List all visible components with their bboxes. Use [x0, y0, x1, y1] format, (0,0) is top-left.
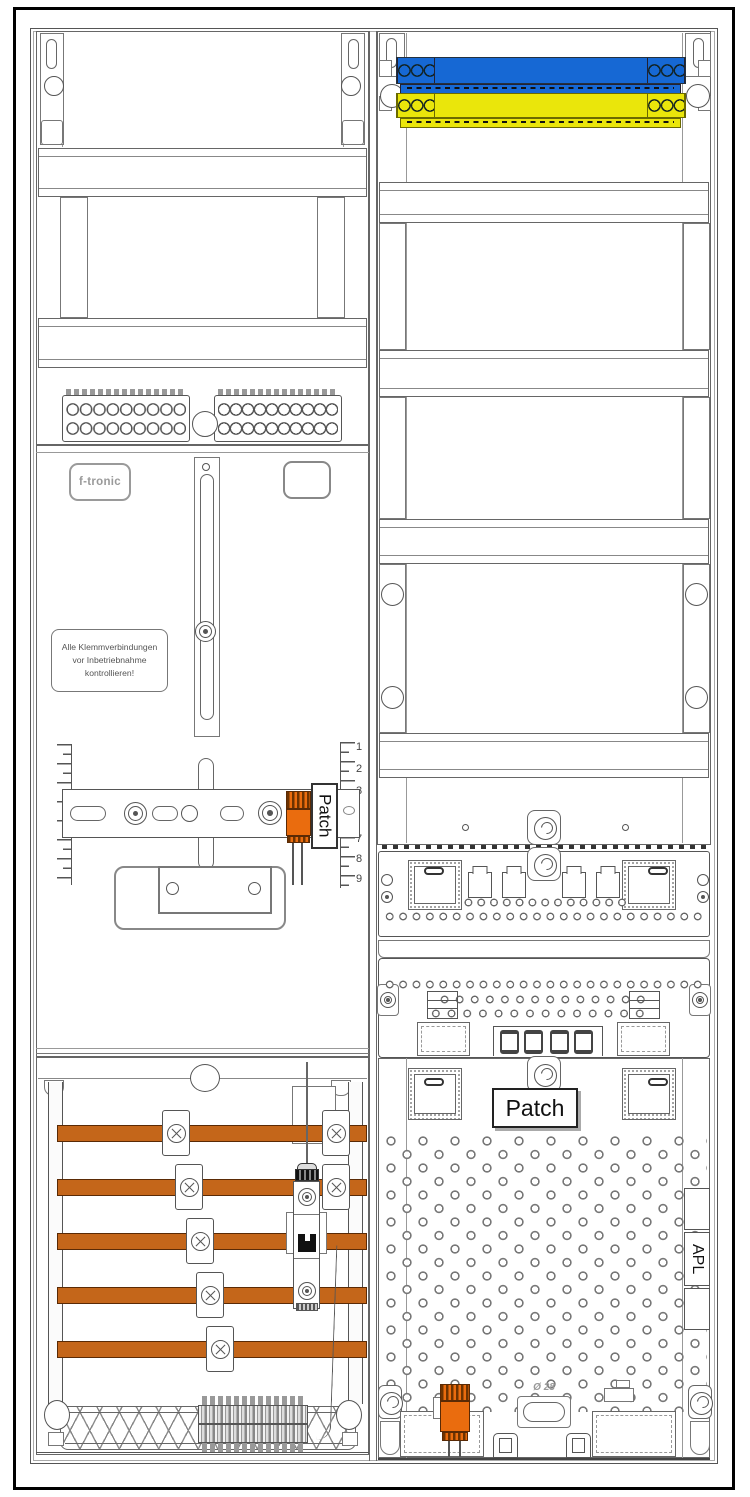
- hole-row: [437, 993, 649, 1006]
- ruler-number: 1: [356, 741, 362, 753]
- patch-label-left-text: Patch: [315, 794, 335, 837]
- panel-bump-icon: [697, 891, 709, 903]
- side-post: [379, 397, 406, 519]
- box-icon: [616, 1380, 630, 1388]
- din-rail-cover-r2: [379, 350, 709, 397]
- panel-dot-icon: [462, 824, 469, 831]
- blank-badge: [283, 461, 331, 499]
- busbar-clamp: [175, 1164, 203, 1210]
- foot-arc: [380, 1421, 400, 1455]
- screw-icon: [323, 1120, 350, 1147]
- quarter-turn-fastener-icon: [378, 1385, 402, 1419]
- cable-clamp-icon: [500, 1030, 519, 1054]
- quarter-turn-fastener-icon: [527, 810, 561, 845]
- terminal-holes: [218, 400, 338, 438]
- side-post: [379, 223, 406, 350]
- busbar-clamp: [206, 1326, 234, 1372]
- din-rail-cover-2: [38, 318, 367, 368]
- patch-module-wire: [301, 843, 303, 885]
- din-rail-cover-1: [38, 148, 367, 197]
- apl-label-box: APL: [684, 1232, 710, 1286]
- rail-foot-l: [41, 120, 63, 145]
- slide-screw-icon: [195, 621, 216, 642]
- patch-label-right: Patch: [492, 1088, 578, 1128]
- panel-bump-icon: [697, 874, 709, 886]
- din-rail-cover-r4: [379, 733, 709, 778]
- left-bottom-line: [36, 1452, 369, 1453]
- box-icon: [604, 1388, 634, 1402]
- rj45-jack-icon: [468, 872, 492, 898]
- warning-line-2: vor Inbetriebnahme: [72, 654, 146, 667]
- rail-box: [684, 1288, 710, 1330]
- slide-bar-slot: [200, 474, 214, 720]
- rail-slot-icon: [46, 39, 57, 69]
- apl-label-text: APL: [688, 1244, 706, 1274]
- pe-bar-yellow: [396, 93, 686, 118]
- patch-panel-a-skirt: [378, 940, 710, 958]
- brand-badge-label: f-tronic: [79, 476, 121, 488]
- panel-dot-icon: [622, 824, 629, 831]
- device-line: [294, 1258, 319, 1259]
- pe-bar-endblock: [647, 94, 685, 117]
- cutout-slot-icon: [648, 867, 668, 875]
- module-cutout: [408, 1068, 462, 1120]
- panel-bump-icon: [381, 874, 393, 886]
- rail-slot: [220, 806, 244, 821]
- meter-cabinet-diagram: f-tronic Alle Klemmverbindungen vor Inbe…: [0, 0, 750, 1497]
- foot-arc: [690, 1421, 710, 1455]
- nameplate-hole-icon: [166, 882, 179, 895]
- busbar-clamp: [322, 1110, 350, 1156]
- terminal-strip-tabs: [202, 1443, 304, 1452]
- patch-module-body: [286, 809, 311, 836]
- meter-panel-topline: [36, 452, 369, 453]
- device-cap-stripes: [295, 1169, 319, 1181]
- perforated-plate: [383, 1134, 707, 1412]
- module-cutout: [622, 1068, 676, 1120]
- busbar-clamp: [322, 1164, 350, 1210]
- warning-label: Alle Klemmverbindungen vor Inbetriebnahm…: [51, 629, 168, 692]
- warning-line-1: Alle Klemmverbindungen: [62, 641, 158, 654]
- corner-screw-icon: [380, 992, 396, 1008]
- rail-slot-icon: [348, 39, 359, 69]
- clamp-bracket-icon: [566, 1433, 591, 1458]
- din-rail-cover-r1: [379, 182, 709, 223]
- post-hole-icon: [685, 583, 708, 606]
- cable-clamp-icon: [550, 1030, 569, 1054]
- din-rail-cover-r3: [379, 519, 709, 564]
- cutout-slot-icon: [648, 1078, 668, 1086]
- post-hole-icon: [381, 583, 404, 606]
- meter-panel-bottomline: [36, 1048, 369, 1049]
- neutral-bar-endblock: [397, 58, 435, 83]
- cable-clamp-icon: [524, 1030, 543, 1054]
- patch-module-foot: [287, 836, 310, 843]
- corner-screw-icon: [692, 992, 708, 1008]
- rail-hole-icon: [44, 76, 64, 96]
- rail-screw-icon: [258, 801, 282, 825]
- column-divider: [369, 31, 377, 1461]
- cutout-open: [417, 1022, 470, 1056]
- screw-icon: [187, 1228, 214, 1255]
- top-rail-notch-icon: [190, 1064, 220, 1092]
- bar-clip: [698, 60, 711, 77]
- busbar-clamp: [186, 1218, 214, 1264]
- surge-module-foot: [442, 1432, 468, 1441]
- corner-grommet-icon: [44, 1400, 70, 1430]
- right-top-section: [377, 31, 711, 845]
- cable-clamp-icon: [574, 1030, 593, 1054]
- neutral-bar-endblock: [647, 58, 685, 83]
- quarter-turn-fastener-icon: [527, 847, 561, 881]
- rj45-jack-icon: [562, 872, 586, 898]
- panel-bump-icon: [381, 891, 393, 903]
- device-screw-icon: [298, 1282, 316, 1300]
- corner-grommet-icon: [336, 1400, 362, 1430]
- device-line: [294, 1214, 319, 1215]
- screw-icon: [163, 1120, 190, 1147]
- terminal-strip: [198, 1405, 308, 1443]
- screw-icon: [323, 1174, 350, 1201]
- rail-slot: [152, 806, 178, 821]
- hole-row: [428, 1007, 648, 1020]
- bar-clip: [379, 60, 392, 77]
- rj45-jack-icon: [596, 872, 620, 898]
- post-hole-icon: [685, 686, 708, 709]
- meter-panel-bottomline2: [36, 1053, 369, 1054]
- slotted-plate: [629, 991, 660, 1019]
- side-post-l: [60, 197, 88, 318]
- slide-bar-hole-icon: [202, 463, 210, 471]
- patch-module-top: [286, 791, 311, 809]
- device-clip-notch: [305, 1234, 310, 1241]
- quarter-turn-fastener-icon: [688, 1385, 712, 1419]
- side-post: [683, 223, 710, 350]
- hole-row: [462, 896, 628, 909]
- nameplate-hole-icon: [248, 882, 261, 895]
- quarter-turn-fastener-icon: [527, 1056, 561, 1092]
- cutout-open: [592, 1411, 676, 1457]
- rail-slot: [70, 806, 106, 821]
- terminal-strip-tabs: [202, 1396, 304, 1405]
- busbar-1: [57, 1125, 367, 1142]
- rail-hole-icon: [341, 76, 361, 96]
- side-post: [683, 397, 710, 519]
- warning-line-3: kontrollieren!: [85, 667, 134, 680]
- rail-screw-icon: [124, 802, 147, 825]
- patch-label-right-text: Patch: [506, 1095, 565, 1122]
- logo-mark-icon: [343, 806, 355, 815]
- clamp-bracket-icon: [493, 1433, 518, 1458]
- screw-icon: [197, 1282, 224, 1309]
- device-foot-stripes: [296, 1303, 318, 1311]
- patch-label-left: Patch: [311, 783, 338, 849]
- side-post-r: [317, 197, 345, 318]
- center-grommet-icon: [192, 411, 218, 437]
- cable-gland-inner: [523, 1402, 565, 1422]
- pe-bar-lip: [400, 118, 681, 128]
- pe-bar-endblock: [397, 94, 435, 117]
- patch-module-wire: [292, 843, 294, 885]
- screw-icon: [207, 1336, 234, 1363]
- busbar-clamp: [162, 1110, 190, 1156]
- neutral-bar-blue: [396, 57, 686, 84]
- busbar-clamp: [196, 1272, 224, 1318]
- ruler-number: 8: [356, 853, 362, 865]
- diameter-label: Ø 28: [515, 1382, 573, 1394]
- surge-module-wire: [448, 1441, 450, 1457]
- surge-module-top: [440, 1384, 470, 1401]
- terminal-holes: [66, 400, 186, 438]
- brand-badge: f-tronic: [69, 463, 131, 501]
- surge-module-wire: [459, 1441, 461, 1457]
- rj45-jack-icon: [502, 872, 526, 898]
- right-inner-line-l: [406, 33, 407, 843]
- surge-module-body: [440, 1401, 470, 1432]
- hole-row: [383, 978, 705, 991]
- device-stem: [306, 1062, 308, 1163]
- rail-hole-icon: [181, 805, 198, 822]
- corner-clip: [48, 1432, 64, 1446]
- busbar-2: [57, 1179, 367, 1196]
- device-screw-icon: [298, 1188, 316, 1206]
- post-hole-icon: [381, 686, 404, 709]
- cutout-slot-icon: [424, 867, 444, 875]
- screw-icon: [176, 1174, 203, 1201]
- cutout-open: [617, 1022, 670, 1056]
- slotted-plate: [427, 991, 458, 1019]
- hole-row: [383, 910, 705, 923]
- corner-clip: [342, 1432, 358, 1446]
- cutout-slot-icon: [424, 1078, 444, 1086]
- right-bottom-line: [378, 1458, 710, 1460]
- rail-foot-r: [342, 120, 364, 145]
- rail-box: [684, 1188, 710, 1230]
- ruler-number: 9: [356, 873, 362, 885]
- ruler-number: 2: [356, 763, 362, 775]
- rail-hole-icon: [686, 84, 710, 108]
